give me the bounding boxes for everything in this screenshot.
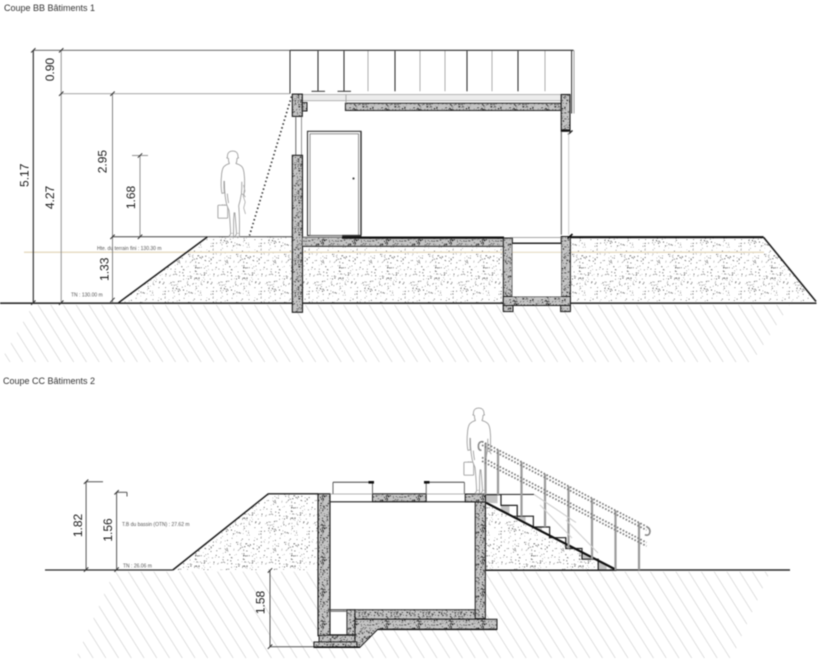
svg-text:Coupe BB Bâtiments 1: Coupe BB Bâtiments 1	[4, 3, 95, 13]
svg-text:Hte. du terrain fini : 130.30: Hte. du terrain fini : 130.30 m	[97, 246, 161, 252]
svg-text:1.82: 1.82	[71, 513, 85, 537]
svg-text:TN : 26.06 m: TN : 26.06 m	[123, 564, 152, 570]
svg-text:1.56: 1.56	[101, 518, 115, 542]
svg-text:4.27: 4.27	[43, 185, 57, 209]
svg-text:1.33: 1.33	[98, 257, 112, 281]
svg-text:TN : 130.00 m: TN : 130.00 m	[71, 293, 103, 299]
svg-text:5.17: 5.17	[18, 163, 32, 187]
svg-text:0.90: 0.90	[43, 58, 57, 82]
svg-text:1.58: 1.58	[254, 590, 268, 614]
svg-text:1.68: 1.68	[124, 185, 138, 209]
svg-text:2.95: 2.95	[96, 150, 110, 174]
svg-text:T.B du bassin (OTN) : 27.62 m: T.B du bassin (OTN) : 27.62 m	[122, 522, 190, 528]
svg-text:Coupe CC Bâtiments 2: Coupe CC Bâtiments 2	[3, 376, 95, 386]
